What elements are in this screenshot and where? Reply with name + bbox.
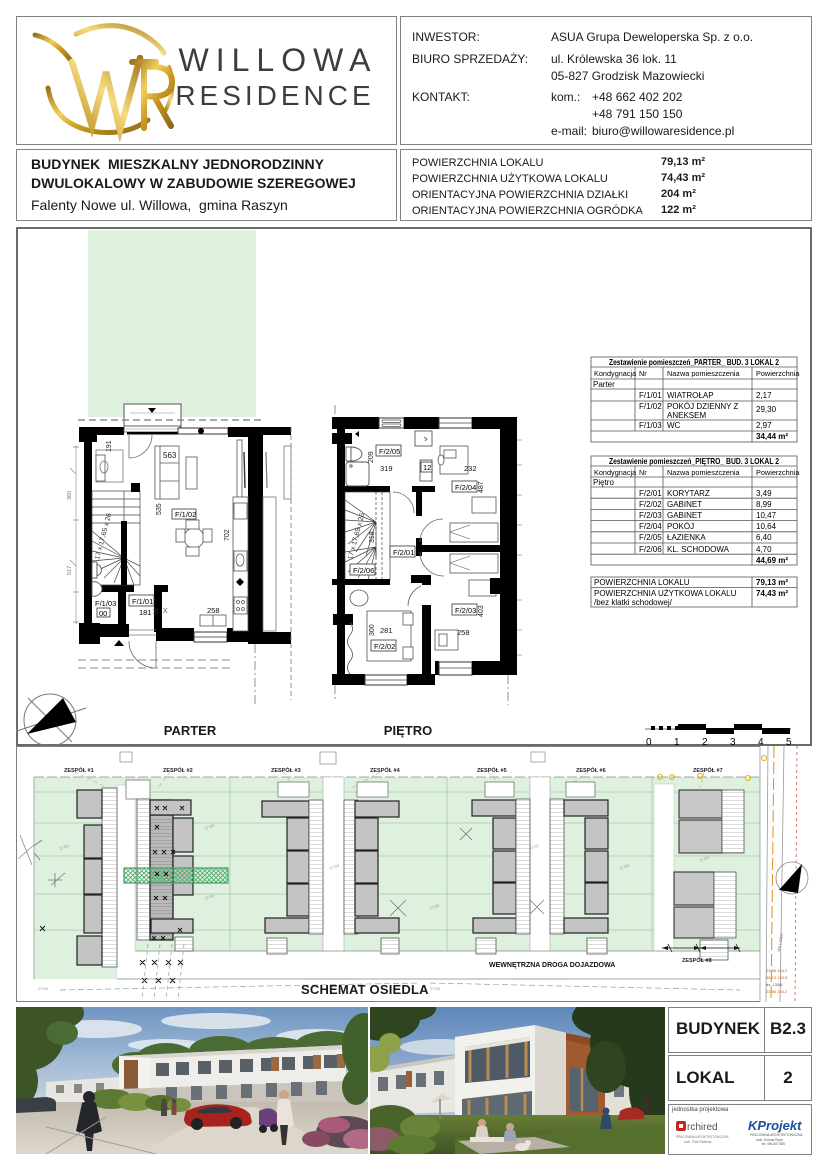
svg-text:10,47: 10,47 <box>756 511 777 520</box>
svg-text:34,44 m²: 34,44 m² <box>756 432 788 441</box>
svg-text:POWIERZCHNIA UŻYTKOWA LOKALU: POWIERZCHNIA UŻYTKOWA LOKALU <box>594 589 737 598</box>
svg-text:dz. 133/6: dz. 133/6 <box>766 982 783 987</box>
svg-text:WEWNĘTRZNA DROGA DOJAZDOWA: WEWNĘTRZNA DROGA DOJAZDOWA <box>489 962 615 969</box>
svg-text:F/1/01: F/1/01 <box>132 597 153 606</box>
svg-text:Nr: Nr <box>639 468 647 477</box>
svg-text:27/26: 27/26 <box>38 986 49 991</box>
svg-text:PRACOWNIA ARCHITEKTONICZNA: PRACOWNIA ARCHITEKTONICZNA <box>676 1135 729 1139</box>
svg-text:F/2/01: F/2/01 <box>639 489 662 498</box>
svg-text:/bez klatki schodowej/: /bez klatki schodowej/ <box>594 598 673 607</box>
svg-text:2,97: 2,97 <box>756 421 772 430</box>
svg-text:ZESPÓŁ #8: ZESPÓŁ #8 <box>682 956 712 964</box>
svg-text:ZESPÓŁ #6: ZESPÓŁ #6 <box>576 766 606 774</box>
svg-text:F/2/06: F/2/06 <box>353 566 374 575</box>
svg-text:5: 5 <box>786 737 792 746</box>
svg-text:191: 191 <box>106 440 113 452</box>
svg-text:F/2/03: F/2/03 <box>455 606 476 615</box>
svg-text:F/2/03: F/2/03 <box>639 511 662 520</box>
svg-text:WC: WC <box>667 421 681 430</box>
svg-text:12: 12 <box>423 463 431 472</box>
svg-text:360: 360 <box>67 491 73 500</box>
svg-text:2: 2 <box>702 737 708 746</box>
svg-text:Parter: Parter <box>593 380 615 389</box>
svg-text:WIATROŁAP: WIATROŁAP <box>667 391 714 400</box>
svg-text:44,69 m²: 44,69 m² <box>756 556 788 565</box>
svg-text:ZESPÓŁ #7: ZESPÓŁ #7 <box>693 766 723 774</box>
svg-text:Kondygnacja: Kondygnacja <box>594 468 637 477</box>
svg-text:F/1/03: F/1/03 <box>639 421 662 430</box>
svg-text:arch. Piotr Redlena: arch. Piotr Redlena <box>684 1140 712 1144</box>
svg-text:Kondygnacja: Kondygnacja <box>594 369 637 378</box>
svg-text:281: 281 <box>380 626 393 635</box>
svg-text:23.56 134.2: 23.56 134.2 <box>766 968 788 973</box>
svg-text:535: 535 <box>156 503 163 515</box>
svg-text:F/2/01: F/2/01 <box>393 548 414 557</box>
svg-text:F/2/04: F/2/04 <box>639 522 662 531</box>
svg-text:PRACOWNIA ARCHITEKTONICZNA: PRACOWNIA ARCHITEKTONICZNA <box>750 1133 803 1137</box>
svg-text:563: 563 <box>163 451 177 460</box>
svg-text:F/1/03: F/1/03 <box>95 599 116 608</box>
svg-text:ZESPÓŁ #5: ZESPÓŁ #5 <box>477 766 507 774</box>
svg-text:KORYTARZ: KORYTARZ <box>667 489 710 498</box>
svg-text:tel. 456 807 885: tel. 456 807 885 <box>762 1142 785 1146</box>
svg-text:ZESPÓŁ #1: ZESPÓŁ #1 <box>64 766 94 774</box>
svg-text:4,70: 4,70 <box>756 545 772 554</box>
svg-text:318: 318 <box>369 531 376 543</box>
svg-text:Nr: Nr <box>639 369 647 378</box>
svg-text:F/1/02: F/1/02 <box>175 510 196 519</box>
svg-text:F/2/05: F/2/05 <box>379 447 400 456</box>
svg-text:181: 181 <box>139 608 152 617</box>
svg-text:ZESPÓŁ #4: ZESPÓŁ #4 <box>370 766 401 774</box>
svg-text:F/2/05: F/2/05 <box>639 533 662 542</box>
svg-text:702: 702 <box>224 529 231 541</box>
svg-text:0: 0 <box>646 737 652 746</box>
svg-text:POWIERZCHNIA LOKALU: POWIERZCHNIA LOKALU <box>594 578 690 587</box>
svg-text:300: 300 <box>369 624 376 636</box>
svg-text:F/2/06: F/2/06 <box>639 545 662 554</box>
svg-text:98: 98 <box>154 608 160 615</box>
svg-text:10,64: 10,64 <box>756 522 777 531</box>
svg-text:3: 3 <box>730 737 736 746</box>
svg-text:29,30: 29,30 <box>756 405 777 414</box>
svg-text:232: 232 <box>464 464 477 473</box>
svg-text:2,17: 2,17 <box>756 391 772 400</box>
svg-text:rchired: rchired <box>687 1122 718 1133</box>
svg-text:ŁAZIENKA: ŁAZIENKA <box>667 533 706 542</box>
svg-text:F/1/01: F/1/01 <box>639 391 662 400</box>
svg-text:403: 403 <box>478 605 485 617</box>
svg-text:6,40: 6,40 <box>756 533 772 542</box>
svg-text:F/2/04: F/2/04 <box>455 483 476 492</box>
svg-text:Powierzchnia: Powierzchnia <box>756 468 800 477</box>
svg-text:74,43 m²: 74,43 m² <box>756 589 788 598</box>
svg-text:GABINET: GABINET <box>667 511 702 520</box>
svg-text:Piętro: Piętro <box>593 478 614 487</box>
svg-text:27/28: 27/28 <box>430 986 441 991</box>
svg-text:79,13 m²: 79,13 m² <box>756 578 788 587</box>
svg-text:F/2/02: F/2/02 <box>374 642 395 651</box>
svg-text:517: 517 <box>67 566 73 575</box>
svg-text:GABINET: GABINET <box>667 500 702 509</box>
svg-text:ANEKSEM: ANEKSEM <box>667 411 706 420</box>
svg-text:ZESPÓŁ #3: ZESPÓŁ #3 <box>271 766 301 774</box>
svg-text:487: 487 <box>478 481 485 493</box>
svg-text:23.56 134.2: 23.56 134.2 <box>766 989 788 994</box>
svg-text:Zestawienie pomieszczeń_PARTER: Zestawienie pomieszczeń_PARTER_ BUD. 3 L… <box>609 358 779 367</box>
svg-text:X: X <box>163 608 168 615</box>
svg-text:3,49: 3,49 <box>756 489 772 498</box>
svg-text:Nazwa pomieszczenia: Nazwa pomieszczenia <box>667 468 741 477</box>
svg-text:KL. SCHODOWA: KL. SCHODOWA <box>667 545 730 554</box>
svg-text:319: 319 <box>380 464 393 473</box>
svg-text:Zestawienie pomieszczeń_PIĘTRO: Zestawienie pomieszczeń_PIĘTRO_ BUD. 3 L… <box>609 457 779 466</box>
svg-text:POKÓJ: POKÓJ <box>667 522 694 531</box>
svg-text:ZESPÓŁ #2: ZESPÓŁ #2 <box>163 766 193 774</box>
svg-text:KProjekt: KProjekt <box>748 1118 802 1133</box>
svg-text:4: 4 <box>758 737 764 746</box>
svg-text:8,99: 8,99 <box>756 500 772 509</box>
svg-text:F/1/02: F/1/02 <box>639 402 662 411</box>
svg-text:POKÓJ DZIENNY Z: POKÓJ DZIENNY Z <box>667 402 739 411</box>
svg-text:F/2/02: F/2/02 <box>639 500 662 509</box>
svg-text:Nazwa pomieszczenia: Nazwa pomieszczenia <box>667 369 741 378</box>
svg-text:00: 00 <box>99 609 107 618</box>
svg-text:Powierzchnia: Powierzchnia <box>756 369 800 378</box>
svg-text:1: 1 <box>674 737 680 746</box>
svg-text:258: 258 <box>207 606 220 615</box>
svg-text:209: 209 <box>368 451 375 463</box>
svg-text:56.13 133.8: 56.13 133.8 <box>766 975 788 980</box>
svg-text:258: 258 <box>457 628 470 637</box>
